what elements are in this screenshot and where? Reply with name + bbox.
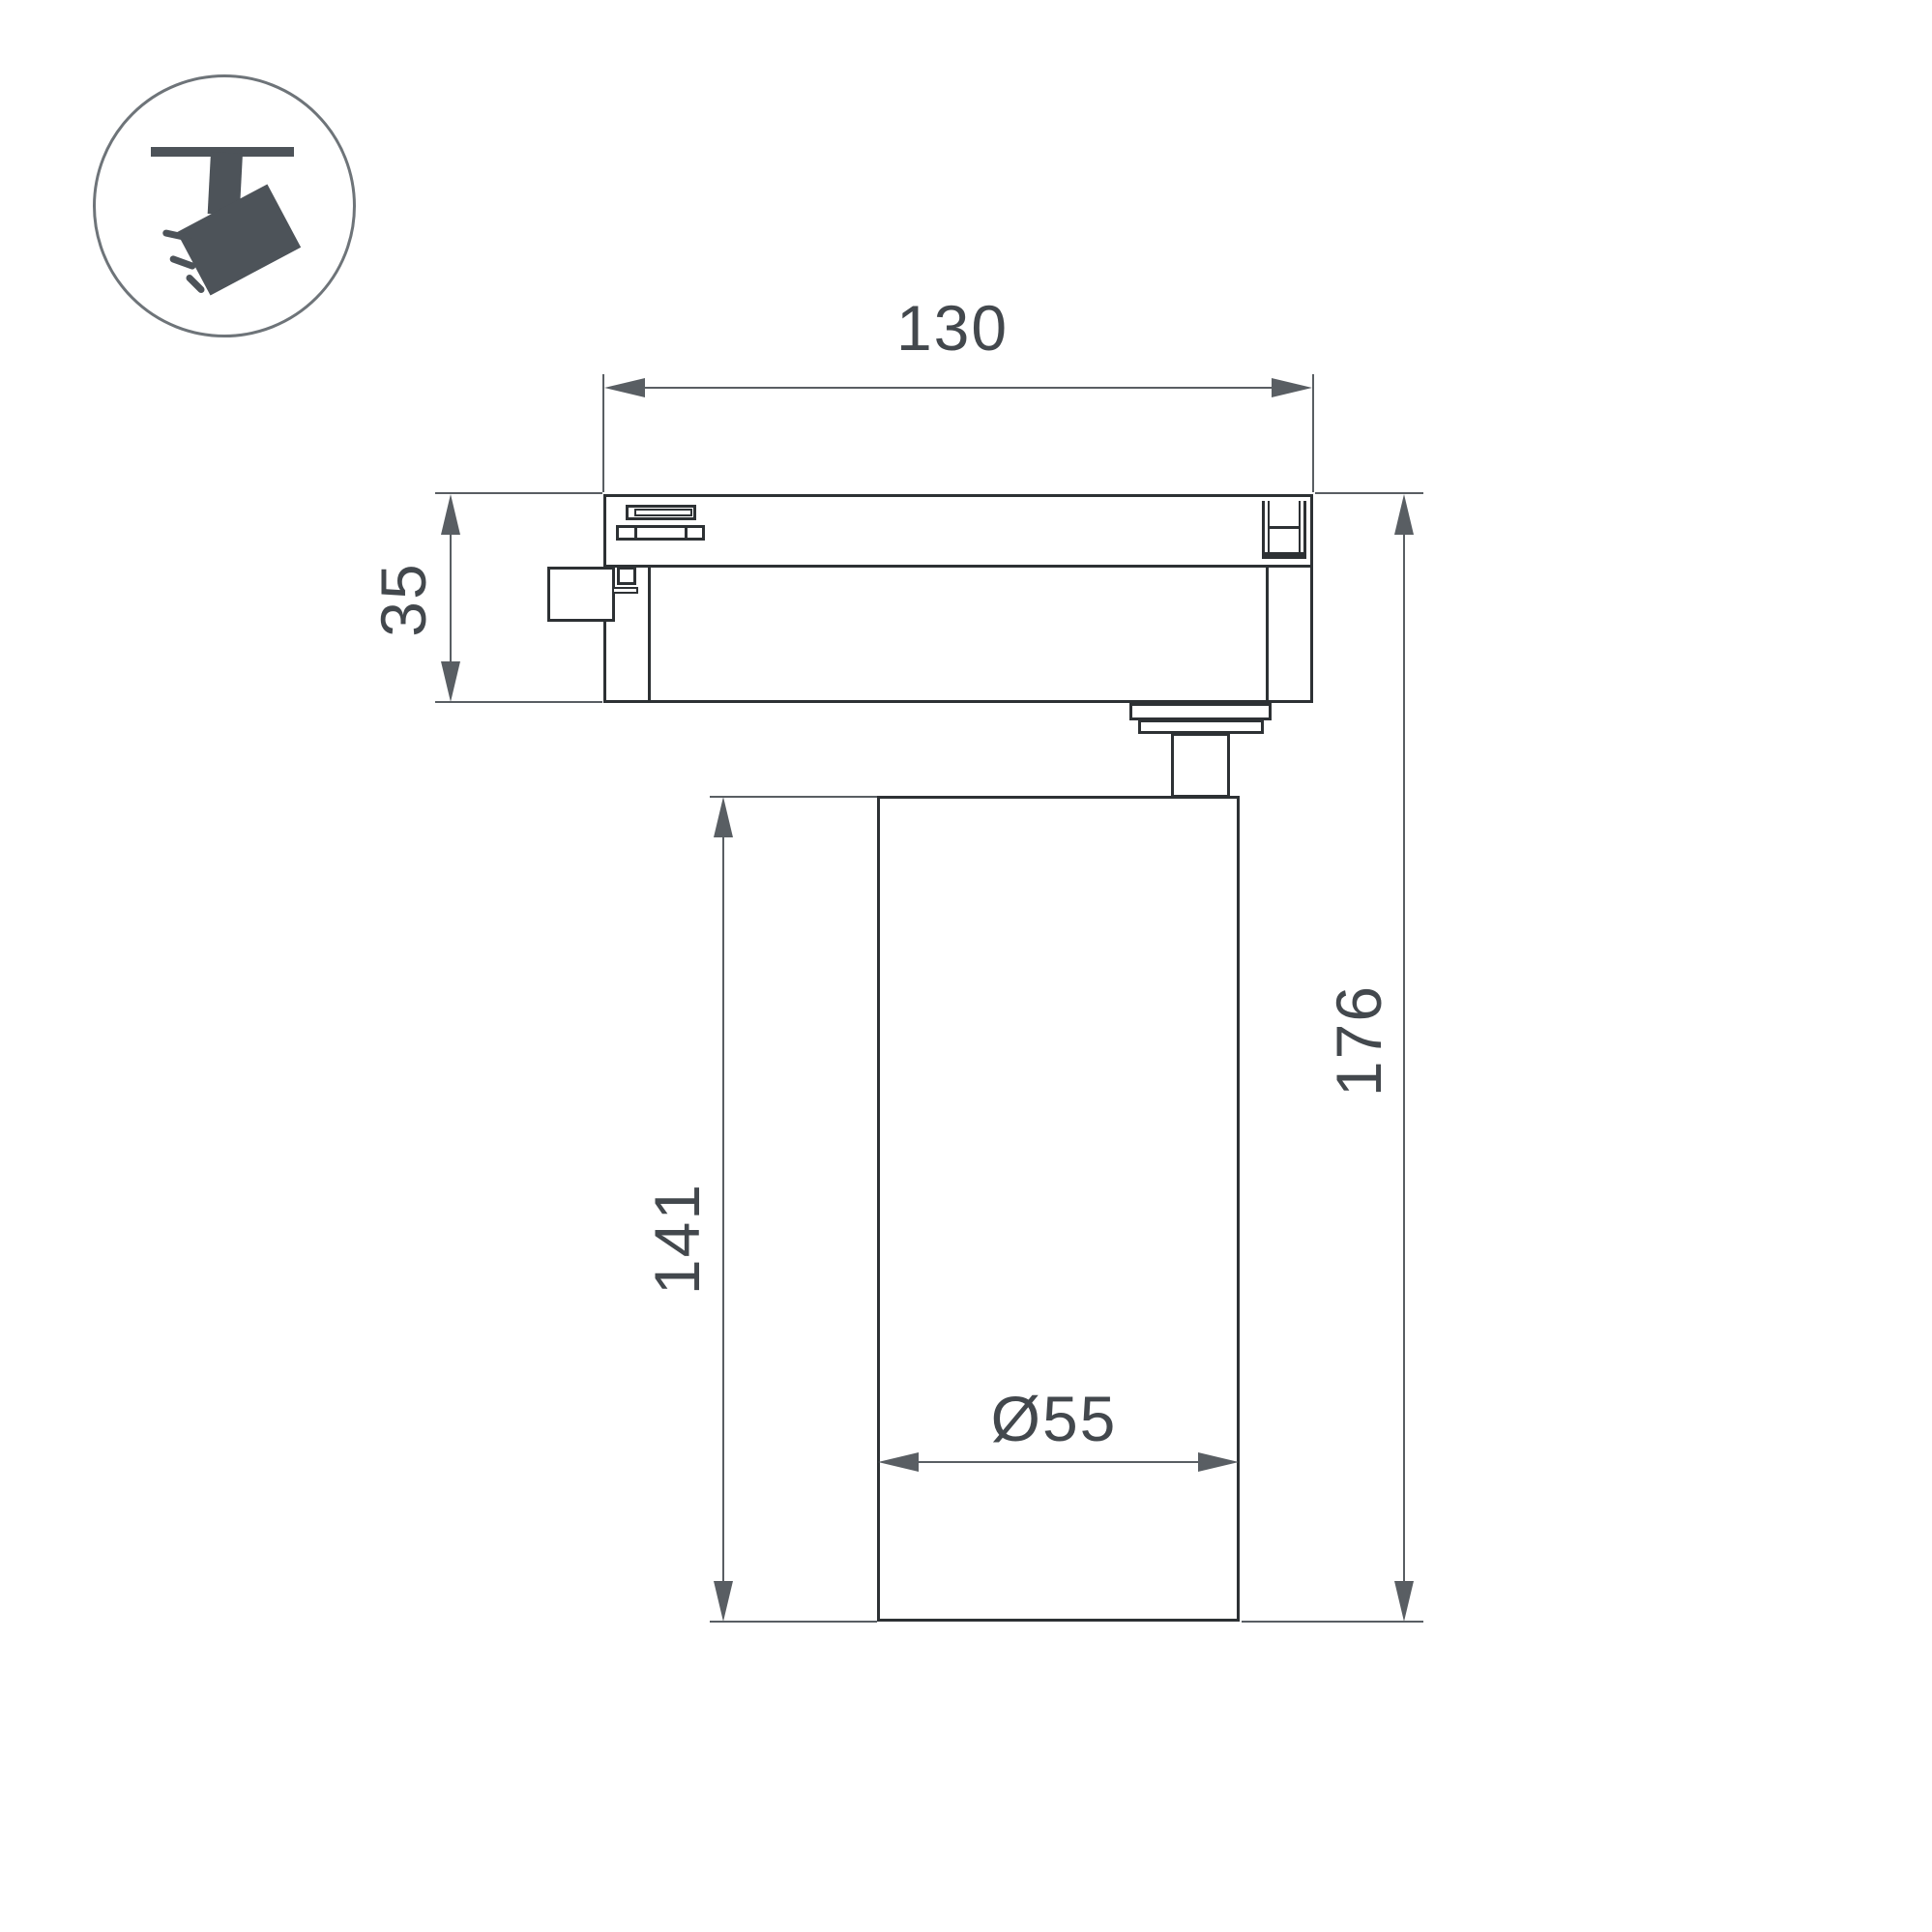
- adapter-latch: [1303, 501, 1306, 559]
- track-adapter-rail-divider: [603, 565, 1313, 568]
- pivot-stem: [1171, 733, 1230, 798]
- adapter-latch-base: [1262, 552, 1306, 559]
- arrowhead-right-icon: [1272, 378, 1312, 397]
- arrowhead-down-icon: [714, 1581, 733, 1622]
- arrowhead-left-icon: [604, 378, 645, 397]
- dimension-line-body-height: [722, 835, 724, 1582]
- track-adapter-body: [603, 494, 1313, 703]
- arrowhead-down-icon: [441, 661, 460, 702]
- track-spotlight-icon: [93, 74, 356, 337]
- adapter-contact-clip: [616, 525, 705, 541]
- extension-line: [1312, 374, 1314, 492]
- adapter-latch: [1262, 501, 1265, 559]
- technical-drawing-canvas: 130 35 141 176 Ø55: [0, 0, 1932, 1932]
- adapter-clip-tick: [685, 525, 688, 541]
- adapter-latch-rung: [1270, 526, 1299, 529]
- lamp-body: [877, 796, 1240, 1622]
- dimension-line-adapter-height: [450, 533, 452, 663]
- arrowhead-left-icon: [878, 1452, 919, 1472]
- pivot-step-lower: [1138, 719, 1264, 734]
- arrowhead-down-icon: [1394, 1581, 1414, 1622]
- arrowhead-up-icon: [1394, 494, 1414, 535]
- adapter-clip-tick: [634, 525, 637, 541]
- arrowhead-up-icon: [714, 797, 733, 837]
- arrowhead-right-icon: [1198, 1452, 1239, 1472]
- pivot-step-upper: [1129, 703, 1272, 720]
- dimension-line-track-width: [624, 387, 1293, 389]
- adapter-lock-knob: [547, 567, 615, 622]
- adapter-latch: [1299, 501, 1301, 552]
- arrowhead-up-icon: [441, 494, 460, 535]
- adapter-inner-edge-left: [648, 568, 651, 703]
- adapter-hinge-channel: [617, 567, 636, 585]
- dimension-track-width-label: 130: [807, 293, 1098, 363]
- adapter-inner-edge-right: [1266, 568, 1269, 703]
- extension-line: [710, 1621, 877, 1623]
- dimension-line-body-diameter: [916, 1461, 1200, 1463]
- dimension-adapter-height-label: 35: [368, 454, 438, 745]
- adapter-hinge-lip: [612, 587, 638, 594]
- dimension-line-overall-height: [1403, 533, 1405, 1583]
- dimension-overall-height-label: 176: [1324, 895, 1393, 1186]
- extension-line: [710, 796, 877, 798]
- dimension-body-height-label: 141: [642, 1094, 712, 1384]
- dimension-body-diameter-label: Ø55: [909, 1384, 1199, 1453]
- adapter-contact-clip-slot: [634, 509, 692, 516]
